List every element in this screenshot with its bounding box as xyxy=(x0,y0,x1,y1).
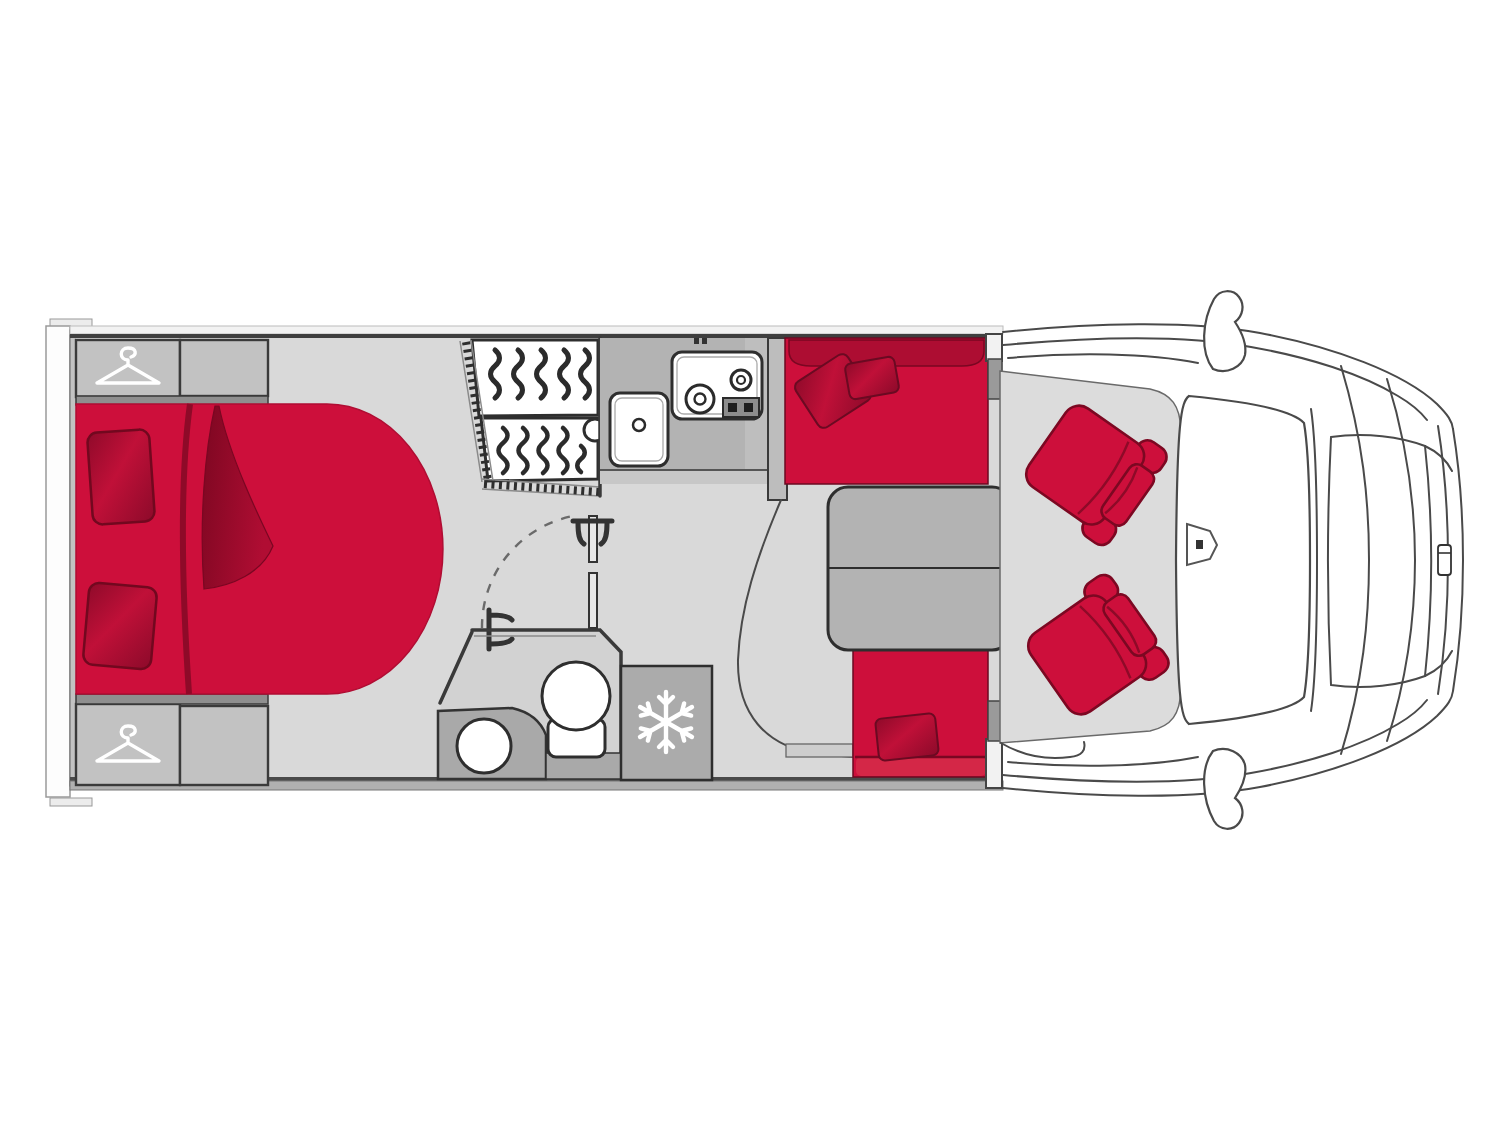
floorplan-page xyxy=(0,0,1499,1125)
kitchen-counter-edge xyxy=(600,470,770,484)
island-bed xyxy=(76,404,443,694)
overhead-cabinet-top xyxy=(180,340,268,396)
rear-corner-cap-bottom xyxy=(50,798,92,806)
bed-pillow xyxy=(83,582,158,670)
kitchen xyxy=(600,338,770,484)
gutter-line-top xyxy=(1008,354,1198,363)
hood-crease xyxy=(1341,366,1369,754)
cowl-line xyxy=(1311,409,1317,711)
bench-pillow xyxy=(875,713,939,761)
kitchen-pillar xyxy=(768,338,787,500)
dinette-bench-rear xyxy=(853,648,988,777)
rear-wall xyxy=(46,326,70,797)
gutter-line-bottom xyxy=(1008,757,1198,766)
bathroom-door-panel xyxy=(589,573,597,628)
bench-pillow xyxy=(844,356,899,400)
cab xyxy=(1000,371,1185,758)
entry-step xyxy=(786,744,853,757)
front-badge xyxy=(1438,545,1451,575)
dinette-table xyxy=(828,487,1012,650)
sink-drain xyxy=(633,419,645,431)
top-wall-band xyxy=(70,326,1003,334)
wing-mirror-top xyxy=(1204,291,1245,371)
bed-foot-ledge xyxy=(76,694,268,704)
bulkhead-wall-top xyxy=(986,334,1002,361)
bulkhead-wall-bottom xyxy=(986,739,1002,788)
dinette-bench-front xyxy=(785,338,988,484)
washbasin xyxy=(457,719,511,773)
hood-crease xyxy=(1387,379,1415,741)
motorhome-floorplan xyxy=(0,0,1499,1125)
hob xyxy=(672,352,762,419)
toilet-bowl xyxy=(542,662,610,730)
fridge xyxy=(621,666,712,780)
bed-pillow xyxy=(87,429,155,525)
wing-mirror-bottom xyxy=(1204,749,1245,829)
overhead-cabinet-bottom xyxy=(180,706,268,785)
cab-step xyxy=(1001,742,1084,758)
bench-front-cushion xyxy=(856,757,986,776)
